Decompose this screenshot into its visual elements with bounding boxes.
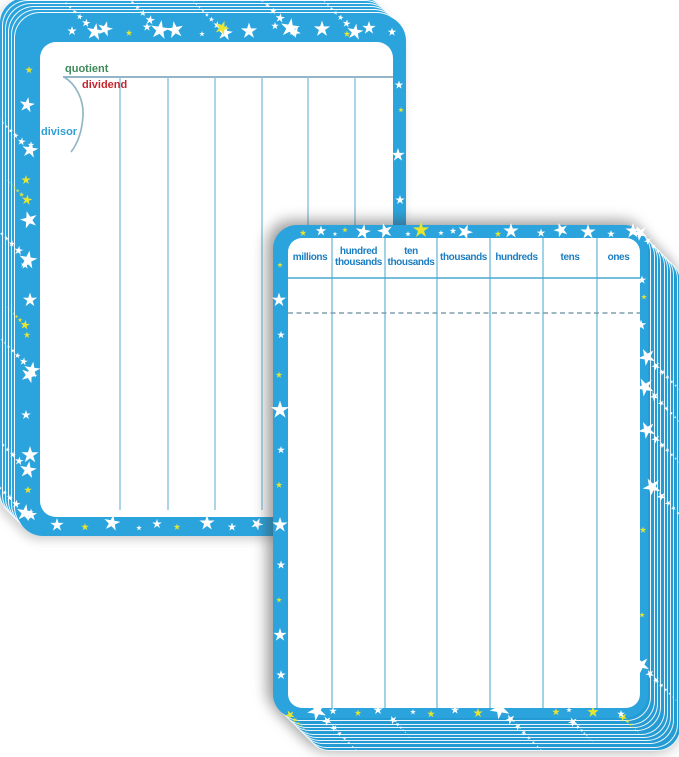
place-value-grid-lines: [288, 238, 640, 708]
place-value-card: millions hundred thousands ten thousands…: [273, 225, 648, 718]
product-image: quotient dividend divisor: [0, 0, 679, 757]
place-value-stack: millions hundred thousands ten thousands…: [0, 0, 679, 757]
column-lines: [332, 238, 597, 708]
place-value-face: millions hundred thousands ten thousands…: [288, 238, 640, 708]
